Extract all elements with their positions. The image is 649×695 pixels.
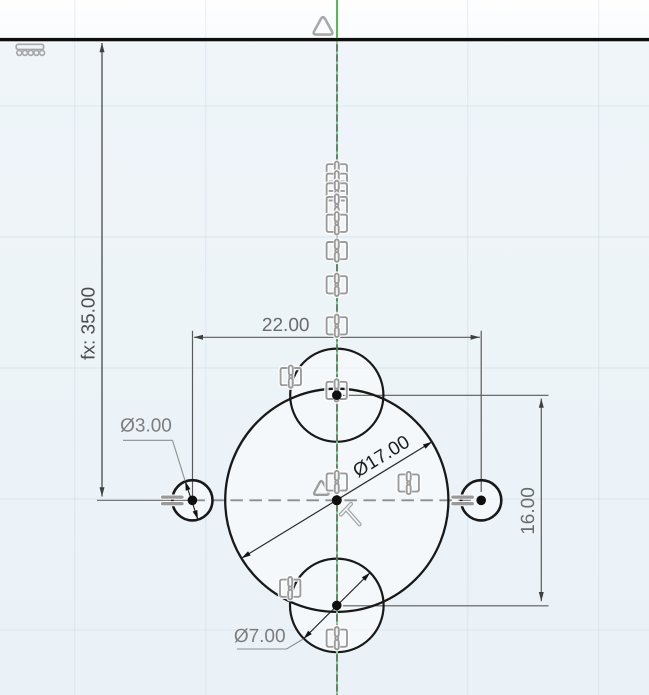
svg-text:Ø7.00: Ø7.00 [234,626,286,647]
svg-text:Ø3.00: Ø3.00 [120,416,172,437]
svg-text:22.00: 22.00 [262,315,310,336]
svg-text:16.00: 16.00 [518,487,539,535]
svg-text:fx: 35.00: fx: 35.00 [79,287,100,360]
